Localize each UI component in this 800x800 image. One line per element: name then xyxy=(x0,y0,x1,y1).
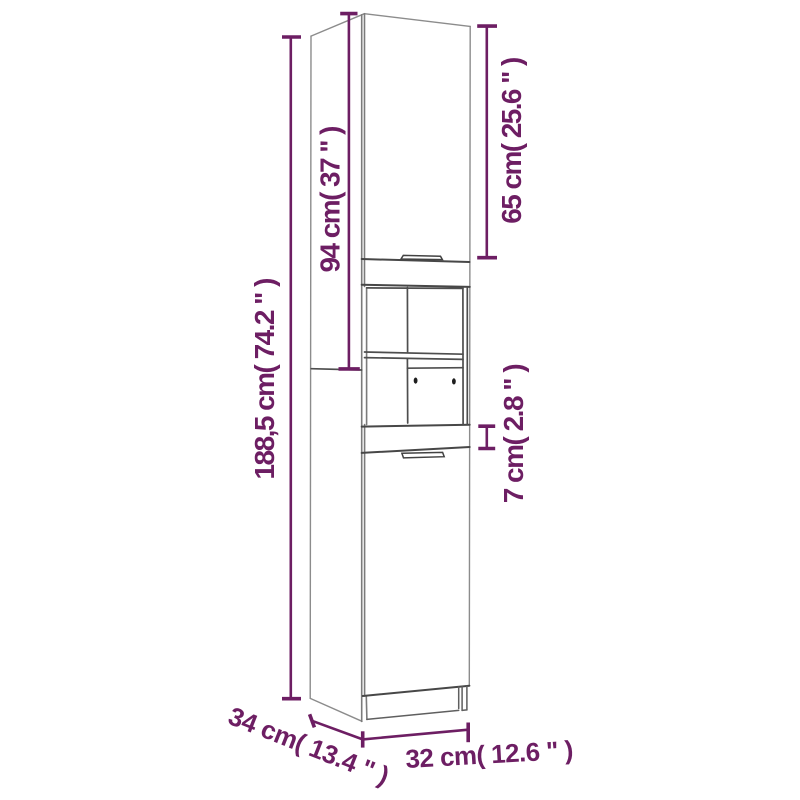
svg-text:94 cm( 37 " ): 94 cm( 37 " ) xyxy=(314,126,345,273)
svg-text:188,5 cm( 74.2 " ): 188,5 cm( 74.2 " ) xyxy=(249,278,280,480)
svg-text:7 cm( 2.8 " ): 7 cm( 2.8 " ) xyxy=(498,363,529,503)
svg-text:65 cm( 25.6 " ): 65 cm( 25.6 " ) xyxy=(496,57,527,224)
